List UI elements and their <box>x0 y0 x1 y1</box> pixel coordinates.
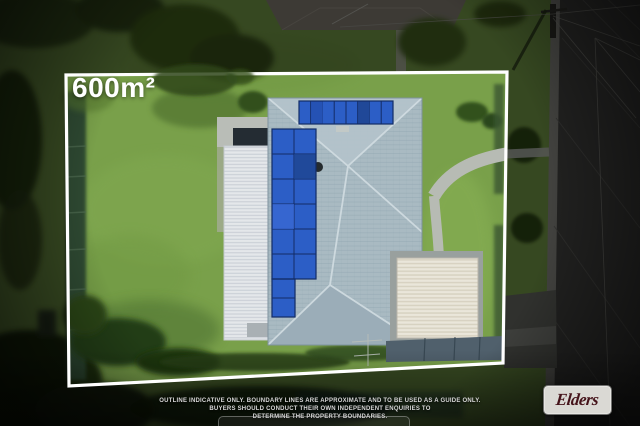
watermark-box <box>218 416 410 426</box>
listing-photo: 600m² OUTLINE INDICATIVE ONLY. BOUNDARY … <box>0 0 640 426</box>
elders-logo: Elders <box>543 385 612 415</box>
elders-logo-text: Elders <box>555 391 599 408</box>
area-label: 600m² <box>72 74 155 102</box>
aerial-photo <box>0 0 640 426</box>
